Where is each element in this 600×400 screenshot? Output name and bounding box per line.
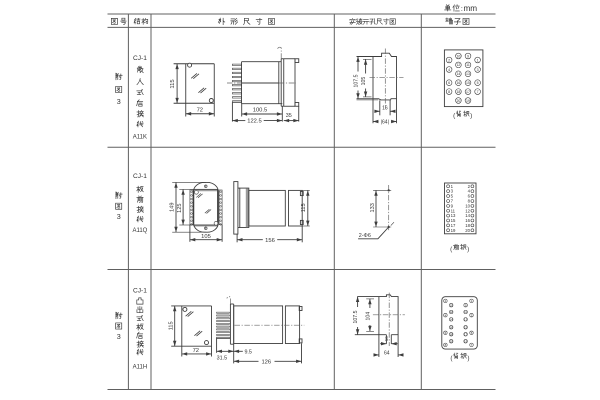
svg-text:100.5: 100.5 [253,108,268,114]
svg-text:156: 156 [265,238,275,244]
svg-text:|64|: |64| [381,119,389,125]
svg-text:(: ( [450,246,453,253]
svg-text:12: 12 [450,310,454,314]
svg-text:CJ-1: CJ-1 [133,173,147,180]
svg-text:9: 9 [467,54,469,58]
svg-text:72: 72 [197,108,203,114]
svg-text:): ) [467,246,469,253]
svg-text:115: 115 [301,203,307,212]
svg-text:15: 15 [464,325,468,329]
svg-text:104: 104 [365,312,371,321]
svg-text:16: 16 [382,105,388,111]
svg-text:): ) [470,113,472,120]
svg-text:9.5: 9.5 [244,349,252,355]
svg-text:CJ-1: CJ-1 [133,55,147,62]
svg-text:19: 19 [451,228,456,233]
svg-text:105: 105 [201,234,211,240]
svg-text:31.5: 31.5 [217,355,228,361]
svg-text:8: 8 [448,90,450,94]
svg-text:A11K: A11K [133,135,147,141]
svg-text:105: 105 [361,77,367,86]
svg-text:16: 16 [456,81,460,85]
svg-text:2-Φ6: 2-Φ6 [359,233,371,239]
svg-text:3: 3 [117,212,121,221]
svg-text:16: 16 [450,325,454,329]
svg-text:20: 20 [456,99,460,103]
svg-text:mm: mm [463,4,477,13]
svg-text:13: 13 [466,72,470,76]
svg-text:16: 16 [384,336,389,341]
svg-text:72: 72 [193,348,199,354]
svg-text:122.5: 122.5 [247,119,262,125]
svg-text:149: 149 [170,203,176,212]
svg-text:64: 64 [384,351,390,357]
svg-text:115: 115 [170,79,176,88]
svg-text:126: 126 [261,359,271,365]
svg-text:35: 35 [286,113,292,119]
svg-text:11: 11 [466,63,470,67]
svg-text:10: 10 [450,303,454,307]
svg-text:14: 14 [456,72,460,76]
svg-text:3: 3 [477,68,479,72]
svg-text:133: 133 [370,203,376,212]
svg-text:19: 19 [464,339,468,343]
svg-text:107.5: 107.5 [354,74,360,87]
svg-text:18: 18 [450,332,454,336]
svg-text:6: 6 [448,81,450,85]
svg-text:115: 115 [168,321,174,330]
svg-text:107.5: 107.5 [353,310,359,323]
svg-text:20: 20 [450,339,454,343]
svg-text:A11Q: A11Q [132,228,147,234]
svg-text:10: 10 [456,54,460,58]
svg-text:): ) [467,355,469,362]
svg-text:20: 20 [465,228,470,233]
svg-text:2: 2 [448,58,450,62]
svg-text:CJ-1: CJ-1 [133,288,147,295]
svg-text:3: 3 [117,97,121,106]
svg-text:13: 13 [464,318,468,322]
svg-text:17: 17 [464,332,468,336]
svg-text:7: 7 [477,90,479,94]
svg-text:19: 19 [466,99,470,103]
svg-text:11: 11 [464,310,467,314]
svg-text:(: ( [453,113,456,120]
svg-text:18: 18 [456,90,460,94]
svg-text:4: 4 [448,68,450,72]
svg-text:15: 15 [466,81,470,85]
svg-text:(: ( [450,355,453,362]
svg-text:3: 3 [117,332,121,341]
svg-text:17: 17 [466,90,470,94]
svg-text:125: 125 [177,204,183,213]
svg-text:12: 12 [456,63,460,67]
svg-text:1: 1 [477,58,479,62]
svg-text:5: 5 [477,81,479,85]
svg-text:14: 14 [450,318,454,322]
svg-text:A11H: A11H [133,365,148,371]
